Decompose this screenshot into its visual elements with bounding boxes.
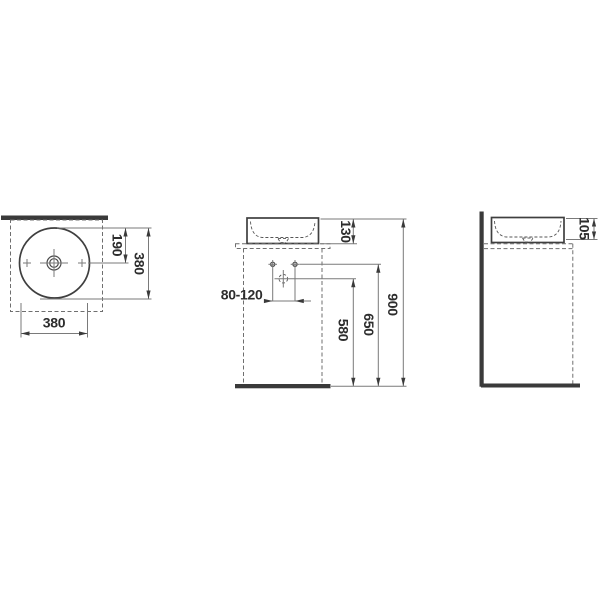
technical-drawing-canvas: 190 380 380 [0, 0, 600, 600]
drain-position-symbol [275, 270, 293, 288]
dimension-faucet-range: 80-120 [221, 269, 311, 304]
dim-label-190: 190 [110, 234, 126, 257]
top-view: 190 380 380 [1, 216, 152, 338]
dimension-diameter-horizontal: 380 [21, 303, 88, 338]
dim-label-130: 130 [338, 220, 354, 243]
basin-outline-side [492, 218, 565, 243]
dim-label-900: 900 [385, 293, 401, 316]
dimension-diameter-vertical: 380 [132, 228, 151, 299]
dimension-drain-height: 580 [336, 279, 356, 387]
dimension-faucet-height: 650 [361, 264, 380, 386]
centerline-tick-right [78, 259, 86, 267]
drain-fitting-side [523, 238, 534, 242]
countertop-outline-front [236, 244, 331, 249]
dim-label-80-120: 80-120 [221, 287, 263, 303]
drain-fitting-front [278, 239, 289, 243]
technical-drawing-page: 190 380 380 [0, 0, 600, 600]
floor-section-side-view [481, 384, 580, 388]
dimension-basin-height: 130 [338, 219, 355, 244]
dimension-center-offset: 190 [110, 228, 128, 263]
dim-label-580: 580 [336, 319, 352, 342]
dim-label-380-vertical: 380 [132, 252, 148, 275]
front-view: 80-120 130 580 650 [221, 218, 407, 388]
faucet-hole-left [268, 260, 277, 269]
basin-outline-front [247, 218, 319, 244]
floor-section-front [235, 384, 331, 388]
dimension-overall-height: 900 [385, 219, 405, 386]
dim-label-105: 105 [577, 217, 593, 240]
basin-inner-bowl-front [251, 222, 316, 238]
centerline-tick-left [23, 259, 31, 267]
dimension-bowl-depth: 105 [577, 217, 597, 240]
dim-label-380-horizontal: 380 [43, 315, 66, 331]
dim-label-650: 650 [361, 313, 377, 336]
side-view: 105 [480, 212, 598, 388]
wall-section-top-view [1, 216, 108, 221]
wall-section-side-view [480, 212, 484, 387]
faucet-hole-right [291, 260, 300, 269]
basin-inner-bowl-side [495, 221, 562, 237]
